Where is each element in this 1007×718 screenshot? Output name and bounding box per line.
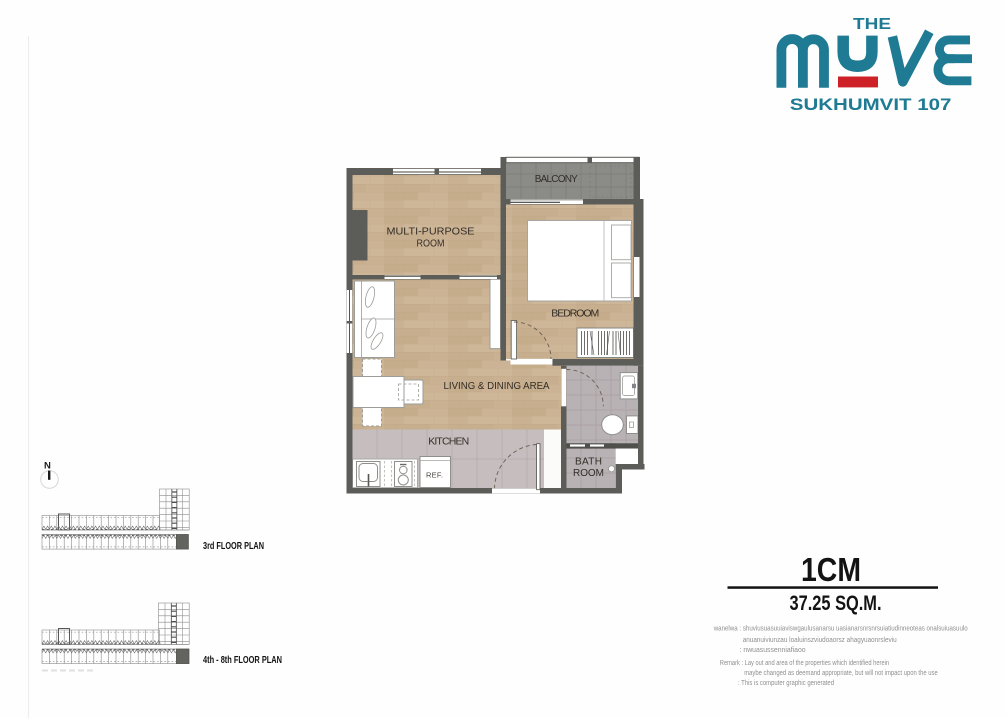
svg-text:REF.: REF. xyxy=(426,471,443,480)
svg-text:BALCONY: BALCONY xyxy=(535,174,578,185)
svg-text:BATH: BATH xyxy=(575,457,602,468)
svg-text:wanelwa : shuviusuasuuiaviswga: wanelwa : shuviusuasuuiaviswgaulusanarsu… xyxy=(713,626,968,633)
svg-text:maybe changed as deemand appro: maybe changed as deemand appropriate, bu… xyxy=(744,670,938,677)
svg-text:Remark : Lay out and area of: Remark : Lay out and area of the propert… xyxy=(720,660,889,667)
svg-text:KITCHEN: KITCHEN xyxy=(428,436,469,448)
svg-text:LIVING & DINING AREA: LIVING & DINING AREA xyxy=(444,380,550,392)
svg-text:anuanuiviunzau loaluinszviudoa: anuanuiviunzau loaluinszviudoaorsz ahagy… xyxy=(743,637,897,644)
svg-text:ROOM: ROOM xyxy=(573,468,604,479)
svg-text:4th - 8th FLOOR PLAN: 4th - 8th FLOOR PLAN xyxy=(203,655,282,666)
svg-text:1CM: 1CM xyxy=(801,551,861,588)
svg-text:SUKHUMVIT 107: SUKHUMVIT 107 xyxy=(790,95,952,114)
svg-text:ROOM: ROOM xyxy=(417,238,445,250)
svg-text:: This is computer graphic gen: : This is computer graphic generated xyxy=(738,680,834,687)
svg-text:THE: THE xyxy=(853,16,891,33)
svg-text:3rd FLOOR PLAN: 3rd FLOOR PLAN xyxy=(203,541,264,552)
svg-text:BEDROOM: BEDROOM xyxy=(551,308,599,320)
svg-text:37.25 SQ.M.: 37.25 SQ.M. xyxy=(790,592,882,615)
svg-text:MULTI-PURPOSE: MULTI-PURPOSE xyxy=(387,226,475,238)
svg-text:: nwuasussenniafiaoo: : nwuasussenniafiaoo xyxy=(740,647,806,654)
svg-text:N: N xyxy=(44,461,51,472)
